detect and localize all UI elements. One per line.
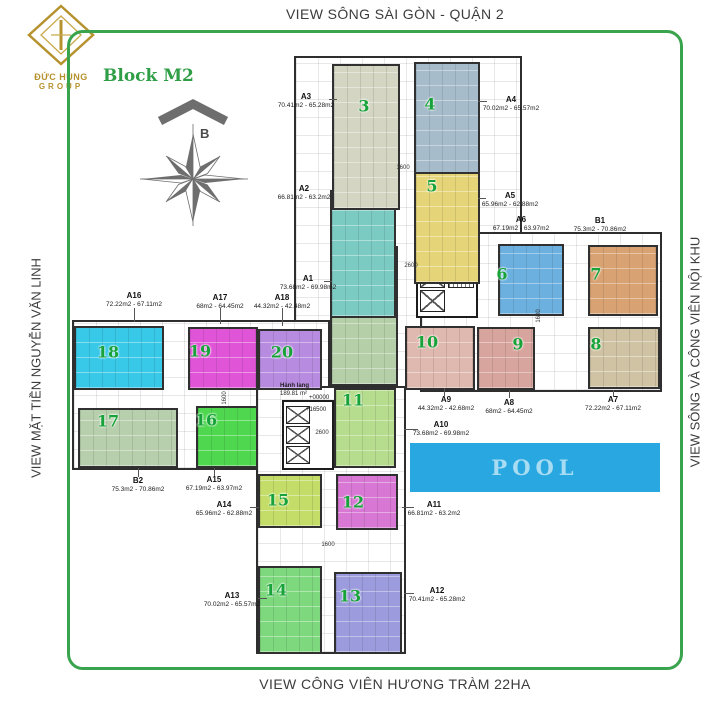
corridor-name: Hành lang [280, 383, 309, 390]
leader-line [478, 101, 487, 102]
leader-line [444, 388, 445, 396]
unit-number-12: 12 [342, 493, 364, 512]
leader-line [613, 390, 614, 397]
leader-line [324, 281, 332, 282]
view-title-right: VIEW SÔNG VÀ CÔNG VIÊN NỘI KHU [688, 237, 703, 467]
apartment-code: A9 [391, 395, 501, 405]
apartment-code: A1 [253, 274, 363, 284]
dimension-text: 2600 [404, 263, 417, 269]
unit-block-9 [477, 327, 535, 390]
apartment-code: A10 [386, 420, 496, 430]
pool-area: POOL [410, 443, 660, 492]
apartment-code: A12 [382, 586, 492, 596]
elevator-shaft-icon [420, 290, 445, 312]
apartment-area-range: 65.96m2 - 62.88m2 [169, 510, 279, 518]
corridor-area: 189.81 m² [280, 391, 307, 398]
unit-number-17: 17 [97, 412, 119, 431]
unit-number-5: 5 [426, 177, 437, 196]
floor-plan-page: ĐỨC HÙNG GROUP VIEW SÔNG SÀI GÒN - QUẬN … [0, 0, 711, 713]
dimension-text: 1600 [396, 165, 409, 171]
unit-number-6: 6 [496, 265, 507, 284]
apartment-area-range: 65.96m2 - 62.88m2 [455, 201, 565, 209]
leader-line [402, 507, 414, 508]
apartment-area-range: 66.81m2 - 63.2m2 [379, 510, 489, 518]
apartment-label-A11: A1166.81m2 - 63.2m2 [379, 500, 489, 517]
pool-label: POOL [491, 455, 578, 480]
apartment-area-range: 70.02m2 - 65.57m2 [456, 105, 566, 113]
apartment-label-A14: A1465.96m2 - 62.88m2 [169, 500, 279, 517]
apartment-label-A12: A1270.41m2 - 65.28m2 [382, 586, 492, 603]
unit-number-13: 13 [339, 587, 361, 606]
apartment-code: A13 [177, 591, 287, 601]
apartment-area-range: 72.22m2 - 67.11m2 [558, 405, 668, 413]
leader-line [214, 468, 215, 476]
unit-number-18: 18 [97, 343, 119, 362]
apartment-area-range: 75.3m2 - 70.86m2 [545, 226, 655, 234]
compass-rose-icon: B [138, 94, 250, 230]
view-title-top: VIEW SÔNG SÀI GÒN - QUẬN 2 [90, 6, 700, 22]
apartment-area-range: 73.68m2 - 69.98m2 [386, 430, 496, 438]
apartment-label-A10: A1073.68m2 - 69.98m2 [386, 420, 496, 437]
leader-line [329, 99, 337, 100]
apartment-area-range: 70.41m2 - 65.28m2 [382, 596, 492, 604]
apartment-code: A5 [455, 191, 565, 201]
apartment-area-range: 66.81m2 - 63.2m2 [249, 194, 359, 202]
unit-number-19: 19 [189, 342, 211, 361]
unit-number-11: 11 [342, 391, 364, 410]
apartment-area-range: 70.41m2 - 65.28m2 [251, 102, 361, 110]
apartment-label-B1: B175.3m2 - 70.86m2 [545, 216, 655, 233]
leader-line [134, 308, 135, 322]
leader-line [404, 593, 414, 594]
apartment-code: B2 [83, 476, 193, 486]
elevator-shaft-icon [286, 426, 310, 444]
apartment-label-A2: A266.81m2 - 63.2m2 [249, 184, 359, 201]
apartment-code: A4 [456, 95, 566, 105]
leader-line [509, 390, 510, 398]
apartment-area-range: 75.3m2 - 70.86m2 [83, 486, 193, 494]
block-title: Block M2 [103, 66, 194, 86]
apartment-label-B2: B275.3m2 - 70.86m2 [83, 476, 193, 493]
apartment-label-A13: A1370.02m2 - 65.57m2 [177, 591, 287, 608]
apartment-label-A5: A565.96m2 - 62.88m2 [455, 191, 565, 208]
dimension-text: 1600 [222, 391, 228, 404]
apartment-label-A7: A772.22m2 - 67.11m2 [558, 395, 668, 412]
unit-number-4: 4 [424, 95, 435, 114]
view-title-left: VIEW MẶT TIỀN NGUYỄN VĂN LINH [29, 258, 44, 478]
leader-line [250, 507, 259, 508]
apartment-label-A1: A173.68m2 - 69.98m2 [253, 274, 363, 291]
dimension-text: 1600 [321, 542, 334, 548]
apartment-code: A3 [251, 92, 361, 102]
apartment-label-A4: A470.02m2 - 65.57m2 [456, 95, 566, 112]
unit-number-16: 16 [195, 411, 217, 430]
elevator-shaft-icon [286, 446, 310, 464]
view-title-bottom: VIEW CÔNG VIÊN HƯƠNG TRÀM 22HA [90, 676, 700, 692]
unit-block-14 [258, 566, 322, 654]
leader-line [282, 308, 283, 326]
level-mark-16500: +16500 [306, 407, 326, 414]
unit-number-20: 20 [271, 343, 293, 362]
leader-line [138, 468, 139, 477]
apartment-code: A18 [227, 293, 337, 303]
apartment-area-range: 73.68m2 - 69.98m2 [253, 284, 363, 292]
compass-north-label: B [200, 126, 209, 141]
dimension-text: 1600 [536, 309, 542, 322]
unit-number-7: 7 [590, 265, 601, 284]
apartment-label-A3: A370.41m2 - 65.28m2 [251, 92, 361, 109]
unit-number-9: 9 [512, 335, 523, 354]
leader-line [220, 308, 221, 324]
leader-line [404, 429, 418, 430]
apartment-code: A2 [249, 184, 359, 194]
apartment-area-range: 44.32m2 - 42.68m2 [391, 405, 501, 413]
unit-block-13 [334, 572, 402, 654]
leader-line [478, 198, 486, 199]
apartment-code: B1 [545, 216, 655, 226]
apartment-area-range: 70.02m2 - 65.57m2 [177, 601, 287, 609]
leader-line [258, 598, 267, 599]
unit-block-17 [78, 408, 178, 468]
unit-number-10: 10 [416, 333, 438, 352]
dimension-text: 2600 [315, 430, 328, 436]
apartment-code: A11 [379, 500, 489, 510]
apartment-label-A9: A944.32m2 - 42.68m2 [391, 395, 501, 412]
apartment-code: A14 [169, 500, 279, 510]
unit-block-6 [498, 244, 564, 316]
level-mark-0: +00000 [309, 395, 329, 402]
unit-number-8: 8 [590, 335, 601, 354]
